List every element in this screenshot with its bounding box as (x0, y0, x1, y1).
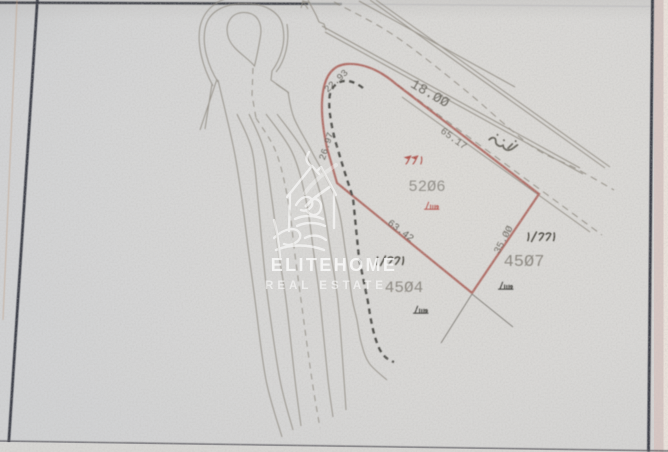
svg-text:REAL ESTATE: REAL ESTATE (265, 280, 387, 292)
svg-text:ELITEHOME: ELITEHOME (271, 255, 398, 275)
